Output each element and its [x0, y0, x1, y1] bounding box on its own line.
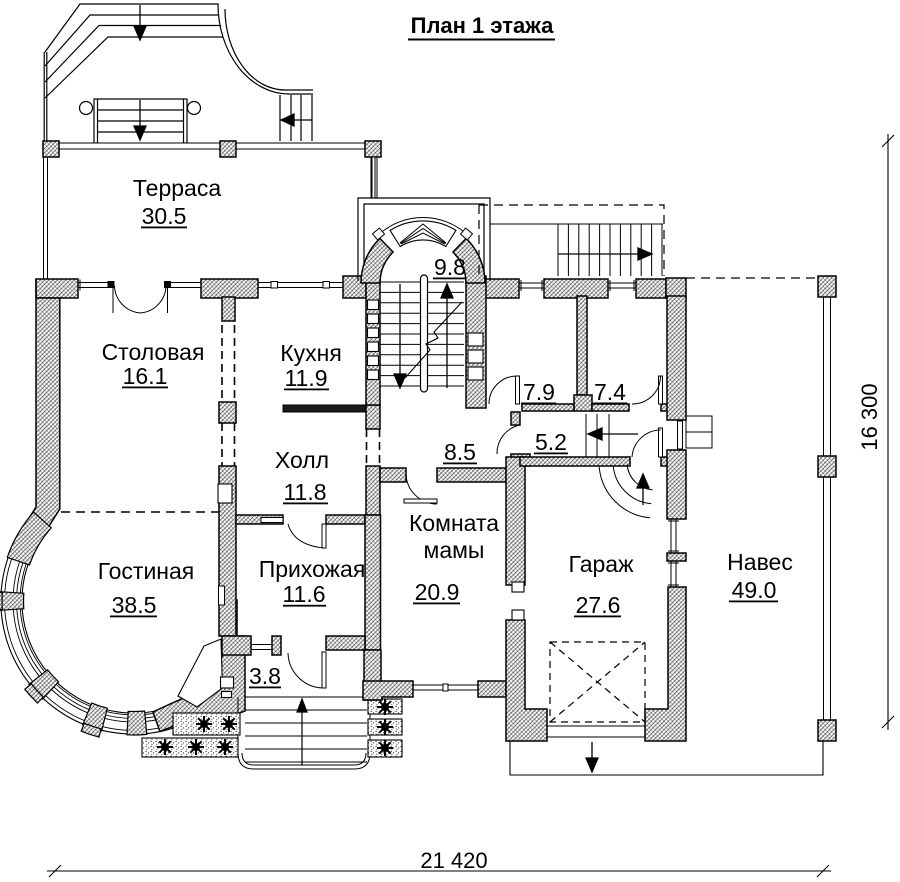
svg-text:мамы: мамы — [424, 537, 485, 563]
svg-text:11.8: 11.8 — [283, 479, 326, 505]
svg-text:7.9: 7.9 — [523, 379, 555, 405]
svg-text:5.2: 5.2 — [535, 429, 567, 455]
svg-text:Столовая: Столовая — [102, 339, 205, 365]
svg-text:Прихожая: Прихожая — [259, 556, 366, 582]
svg-text:3.8: 3.8 — [249, 663, 281, 689]
svg-text:Кухня: Кухня — [280, 340, 342, 366]
svg-text:8.5: 8.5 — [444, 439, 476, 465]
svg-text:Гараж: Гараж — [569, 551, 635, 577]
svg-text:21 420: 21 420 — [420, 848, 487, 873]
svg-text:9.8: 9.8 — [434, 254, 466, 280]
svg-text:Навес: Навес — [727, 549, 793, 575]
svg-text:Терраса: Терраса — [133, 175, 221, 201]
svg-text:11.6: 11.6 — [282, 581, 325, 607]
svg-text:Гостиная: Гостиная — [98, 558, 195, 584]
svg-text:49.0: 49.0 — [732, 577, 777, 603]
svg-text:Комната: Комната — [409, 510, 499, 536]
svg-text:16 300: 16 300 — [857, 383, 882, 450]
svg-text:27.6: 27.6 — [576, 592, 621, 618]
svg-text:30.5: 30.5 — [142, 203, 187, 229]
svg-text:38.5: 38.5 — [112, 592, 157, 618]
svg-text:7.4: 7.4 — [594, 379, 626, 405]
svg-text:20.9: 20.9 — [415, 579, 460, 605]
svg-text:11.9: 11.9 — [284, 365, 327, 391]
svg-text:16.1: 16.1 — [123, 363, 168, 389]
svg-text:План 1 этажа: План 1 этажа — [411, 13, 555, 38]
svg-text:Холл: Холл — [275, 447, 329, 473]
